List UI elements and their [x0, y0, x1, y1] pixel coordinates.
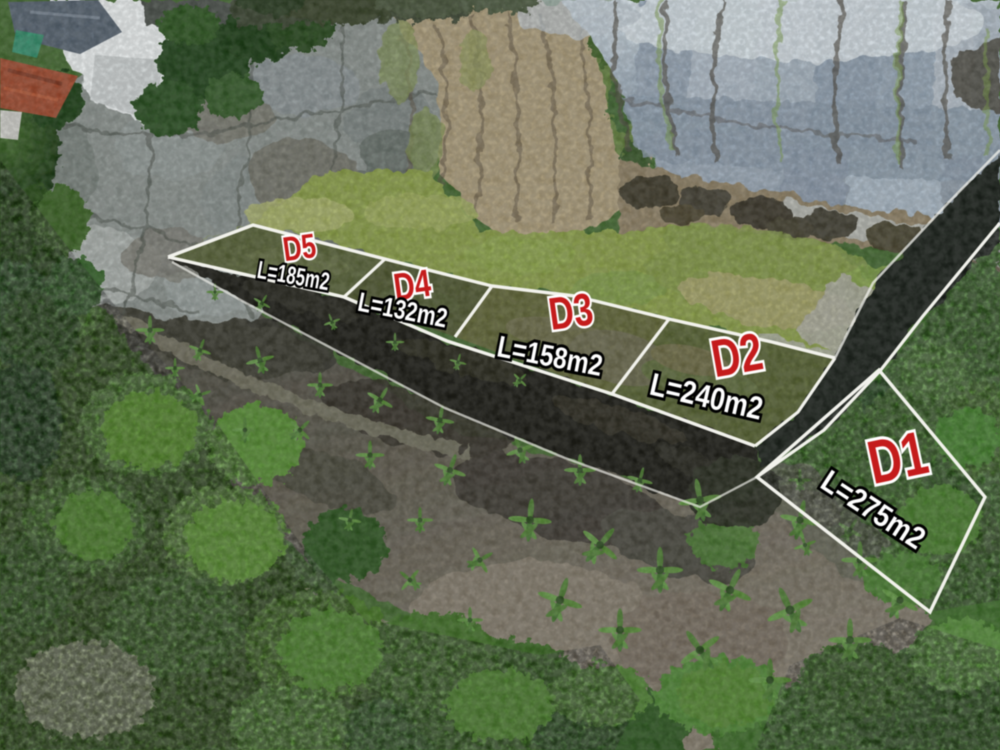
svg-text:D2: D2 [707, 322, 767, 389]
svg-text:D3: D3 [545, 282, 596, 340]
